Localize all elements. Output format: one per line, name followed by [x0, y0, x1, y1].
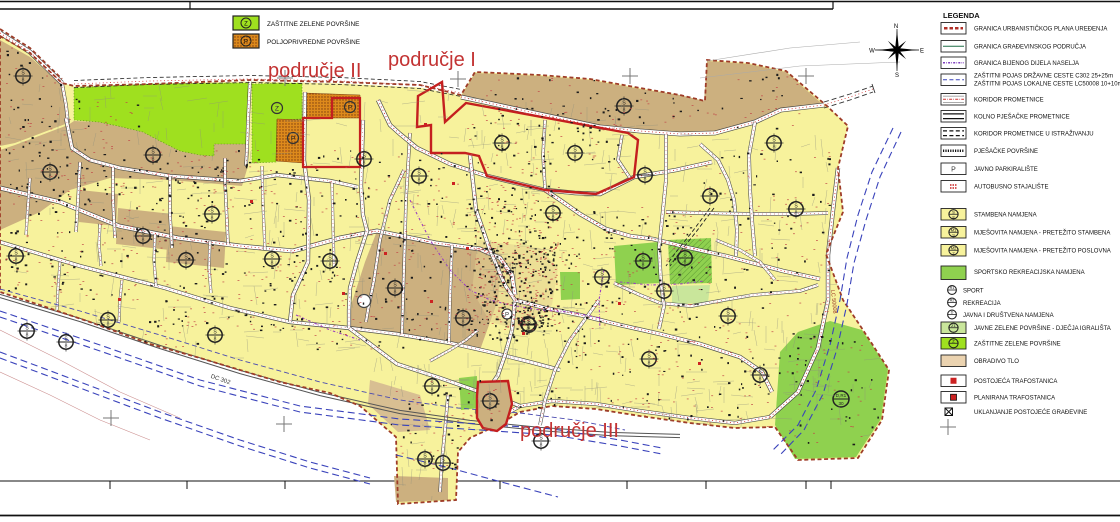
svg-text:8: 8	[462, 320, 465, 326]
svg-text:8: 8	[709, 198, 712, 204]
svg-text:KOLNO PJEŠAČKE PROMETNICE: KOLNO PJEŠAČKE PROMETNICE	[974, 114, 1070, 121]
svg-text:područje II: područje II	[268, 60, 361, 82]
svg-text:Z: Z	[244, 22, 248, 28]
svg-text:8: 8	[214, 337, 217, 343]
svg-text:8: 8	[65, 344, 68, 350]
svg-text:8: 8	[642, 263, 645, 269]
svg-text:P: P	[505, 313, 509, 319]
svg-text:PLANIRANA TRAFOSTANICA: PLANIRANA TRAFOSTANICA	[974, 395, 1055, 401]
svg-text:8: 8	[442, 465, 445, 471]
svg-text:8: 8	[795, 211, 798, 217]
svg-text:OBRADIVO TLO: OBRADIVO TLO	[974, 359, 1019, 365]
svg-text:ZAŠTITNE ZELENE POVRŠINE: ZAŠTITNE ZELENE POVRŠINE	[974, 340, 1061, 347]
svg-text:8: 8	[142, 238, 145, 244]
svg-text:SPORTSKO REKREACIJSKA NAMJENA: SPORTSKO REKREACIJSKA NAMJENA	[974, 270, 1085, 276]
svg-text:8: 8	[15, 258, 18, 264]
svg-text:GRANICA BIJENOG DIJELA NASELJA: GRANICA BIJENOG DIJELA NASELJA	[974, 61, 1079, 67]
svg-text:8: 8	[107, 322, 110, 328]
svg-text:ZAŠTITNE ZELENE POVRŠINE: ZAŠTITNE ZELENE POVRŠINE	[267, 19, 359, 28]
svg-text:8: 8	[727, 318, 730, 324]
svg-text:8: 8	[648, 361, 651, 367]
svg-text:MJEŠOVITA NAMJENA - PRETEŽITO: MJEŠOVITA NAMJENA - PRETEŽITO STAMBENA	[974, 228, 1110, 236]
svg-text:MJEŠOVITA NAMJENA - PRETEŽITO: MJEŠOVITA NAMJENA - PRETEŽITO POSLOVNA	[974, 246, 1111, 254]
svg-text:E: E	[920, 49, 924, 55]
svg-text:8: 8	[394, 290, 397, 296]
svg-text:8: 8	[363, 161, 366, 167]
svg-text:R2: R2	[950, 299, 955, 303]
svg-text:8: 8	[644, 177, 647, 183]
svg-text:N: N	[894, 24, 898, 30]
svg-text:8: 8	[759, 377, 762, 383]
svg-text:8: 8	[271, 261, 274, 267]
svg-text:8: 8	[152, 157, 155, 163]
svg-text:STAMBENA NAMJENA: STAMBENA NAMJENA	[974, 212, 1037, 218]
svg-text:R1: R1	[950, 286, 955, 290]
svg-text:8: 8	[431, 388, 434, 394]
svg-text:JAVNA I DRUŠTVENA NAMJENA: JAVNA I DRUŠTVENA NAMJENA	[963, 312, 1054, 319]
svg-text:8: 8	[211, 216, 214, 222]
svg-text:REKREACIJA: REKREACIJA	[963, 301, 1001, 307]
svg-text:Z: Z	[275, 106, 279, 113]
svg-text:P: P	[291, 136, 295, 143]
svg-text:30: 30	[838, 401, 844, 406]
svg-text:8: 8	[574, 155, 577, 161]
svg-text:područje III: područje III	[520, 420, 619, 442]
svg-text:D: D	[951, 311, 954, 315]
svg-text:D,R1: D,R1	[836, 393, 847, 398]
svg-text:8: 8	[773, 145, 776, 151]
svg-text:AUTOBUSNO STAJALIŠTE: AUTOBUSNO STAJALIŠTE	[974, 183, 1048, 190]
svg-text:LEGENDA: LEGENDA	[943, 11, 980, 20]
svg-text:područje I: područje I	[388, 49, 476, 71]
svg-text:8: 8	[684, 260, 687, 266]
svg-text:JAVNE ZELENE POVRŠINE - DJEČJA: JAVNE ZELENE POVRŠINE - DJEČJA IGRALIŠTA	[974, 325, 1111, 332]
svg-text:8: 8	[540, 443, 543, 449]
svg-text:GRANICA URBANISTIČKOG PLANA UR: GRANICA URBANISTIČKOG PLANA UREĐENJA	[974, 25, 1107, 32]
svg-text:W: W	[869, 49, 875, 55]
svg-text:S: S	[895, 73, 899, 79]
svg-text:GRANICA GRAĐEVINSKOG PODRUČJA: GRANICA GRAĐEVINSKOG PODRUČJA	[974, 44, 1086, 51]
svg-text:8: 8	[22, 78, 25, 84]
svg-text:8: 8	[663, 293, 666, 299]
svg-text:8: 8	[185, 262, 188, 268]
svg-text:SPORT: SPORT	[963, 289, 984, 295]
svg-text:8: 8	[26, 333, 29, 339]
svg-text:ZAŠTITNI POJAS DRŽAVNE CESTE C: ZAŠTITNI POJAS DRŽAVNE CESTE C302 25+25m	[974, 72, 1113, 80]
svg-text:UKLANJANJE POSTOJEĆE GRAĐEVINE: UKLANJANJE POSTOJEĆE GRAĐEVINE	[974, 409, 1087, 416]
svg-text:P: P	[244, 40, 248, 46]
svg-text:POSTOJEĆA TRAFOSTANICA: POSTOJEĆA TRAFOSTANICA	[974, 378, 1057, 385]
svg-text:KORIDOR PROMETNICE: KORIDOR PROMETNICE	[974, 98, 1044, 104]
svg-text:8: 8	[329, 263, 332, 269]
svg-text:8: 8	[424, 461, 427, 467]
svg-text:P: P	[951, 166, 956, 173]
svg-text:ZAŠTITNI POJAS LOKALNE CESTE L: ZAŠTITNI POJAS LOKALNE CESTE LC50008 10+…	[974, 81, 1120, 88]
svg-text:KORIDOR PROMETNICE U ISTRAŽIVA: KORIDOR PROMETNICE U ISTRAŽIVANJU	[974, 129, 1094, 137]
svg-text:P: P	[348, 105, 352, 112]
svg-text:Z1: Z1	[951, 323, 956, 328]
svg-text:POLJOPRIVREDNE POVRŠINE: POLJOPRIVREDNE POVRŠINE	[267, 37, 360, 46]
svg-text:JAVNO PARKIRALIŠTE: JAVNO PARKIRALIŠTE	[974, 166, 1038, 173]
svg-text:PJEŠAČKE POVRŠINE: PJEŠAČKE POVRŠINE	[974, 148, 1038, 155]
svg-text:8: 8	[418, 178, 421, 184]
